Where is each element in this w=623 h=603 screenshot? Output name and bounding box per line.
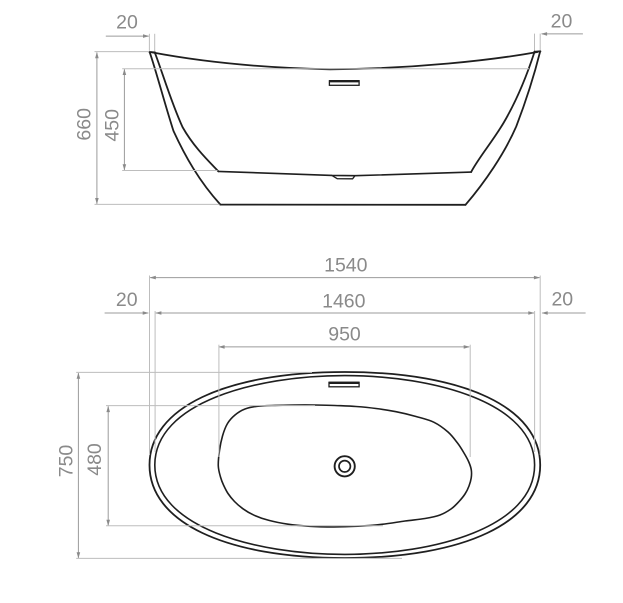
svg-text:480: 480 <box>84 443 106 476</box>
svg-text:20: 20 <box>551 289 573 311</box>
svg-text:20: 20 <box>116 12 138 34</box>
svg-text:20: 20 <box>116 289 138 311</box>
svg-text:450: 450 <box>102 109 124 142</box>
svg-text:1540: 1540 <box>324 254 368 276</box>
svg-text:20: 20 <box>551 11 573 33</box>
svg-text:950: 950 <box>328 323 361 345</box>
svg-text:660: 660 <box>74 108 96 141</box>
svg-text:750: 750 <box>56 445 78 478</box>
svg-text:1460: 1460 <box>322 291 366 313</box>
